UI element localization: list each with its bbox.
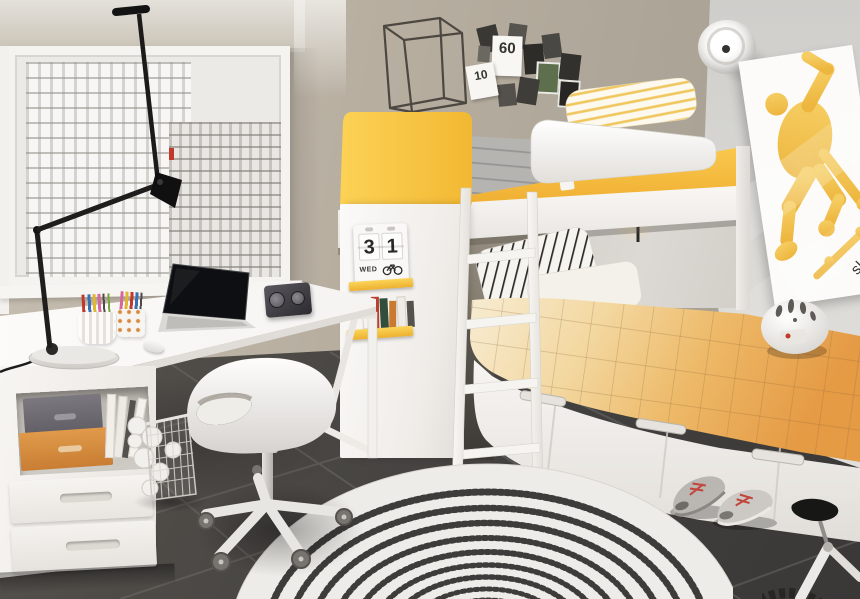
sconce-center-dot	[722, 45, 730, 53]
lamp-base-top	[32, 346, 116, 364]
window-side-shadow	[288, 48, 320, 292]
collage-card-60: 60	[491, 35, 522, 76]
desk-lamp	[0, 0, 230, 390]
book-spine	[389, 301, 396, 328]
box-handle-slot	[54, 413, 76, 421]
drawer-handle	[66, 539, 120, 551]
calendar-clip	[387, 226, 395, 230]
bedroom-scene: 60 10	[0, 0, 860, 599]
collage-photo	[477, 46, 490, 63]
radio-knob	[290, 291, 305, 306]
collage-photo	[541, 33, 562, 59]
bicycle-corner	[762, 492, 860, 599]
drawer-handle	[60, 491, 112, 503]
bicycle-icon	[381, 261, 403, 276]
ladder-rungs	[463, 248, 540, 459]
pedestal-drawer	[11, 520, 157, 573]
leg-front-bar	[368, 312, 377, 458]
flip-calendar: 3 1 WED	[353, 223, 409, 285]
lamp-arm-lower	[37, 232, 50, 348]
collage-card-60-label: 60	[499, 40, 516, 58]
ladder-left-rail	[452, 188, 471, 489]
lamp-arm-upper	[37, 184, 160, 230]
swivel-chair	[160, 340, 360, 585]
bike-frame-tube	[828, 547, 860, 578]
calendar-weekday: WED	[359, 266, 377, 274]
calendar-clip	[365, 227, 373, 231]
book-spine	[396, 296, 407, 327]
bike-saddle	[791, 499, 838, 521]
orange-storage-box	[19, 427, 113, 471]
loft-ladder	[445, 182, 547, 494]
bike-frame-tube	[800, 547, 828, 599]
book-spine	[407, 301, 415, 327]
lamp-top-cap	[116, 9, 146, 12]
bike-helmet	[761, 299, 829, 354]
lamp-arm-vertical	[139, 14, 158, 182]
bike-frame-joint	[823, 542, 833, 552]
lamp-head	[150, 172, 182, 208]
box-handle-slot	[58, 445, 82, 453]
radio-knob	[268, 291, 285, 308]
collage-photo	[558, 53, 581, 81]
lamp-head-knob	[157, 179, 163, 185]
desk-radio-clock	[264, 282, 313, 318]
